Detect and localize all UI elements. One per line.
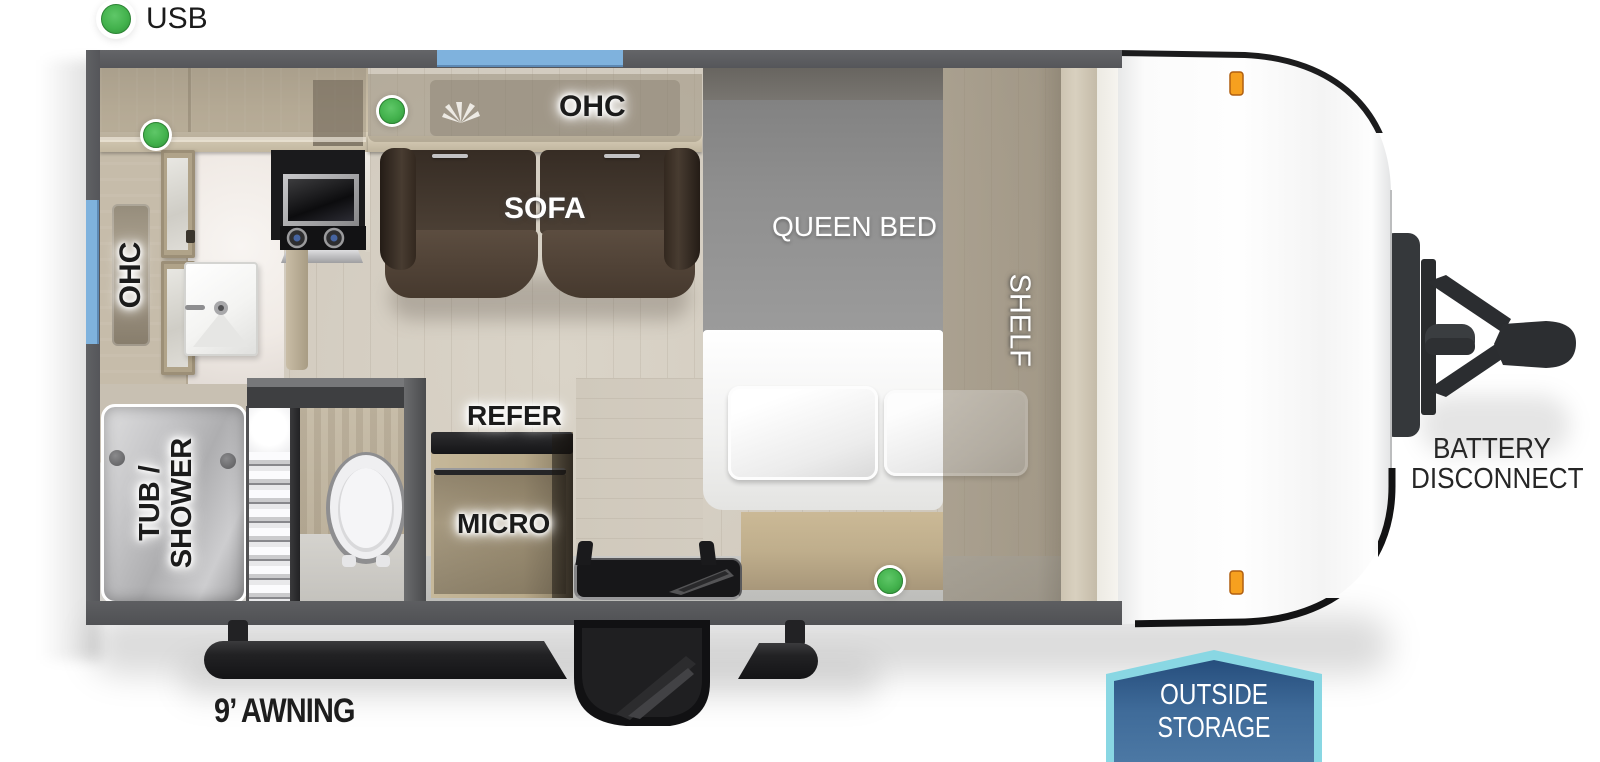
svg-text:OUTSIDE: OUTSIDE — [1160, 679, 1268, 711]
svg-text:STORAGE: STORAGE — [1158, 712, 1271, 744]
